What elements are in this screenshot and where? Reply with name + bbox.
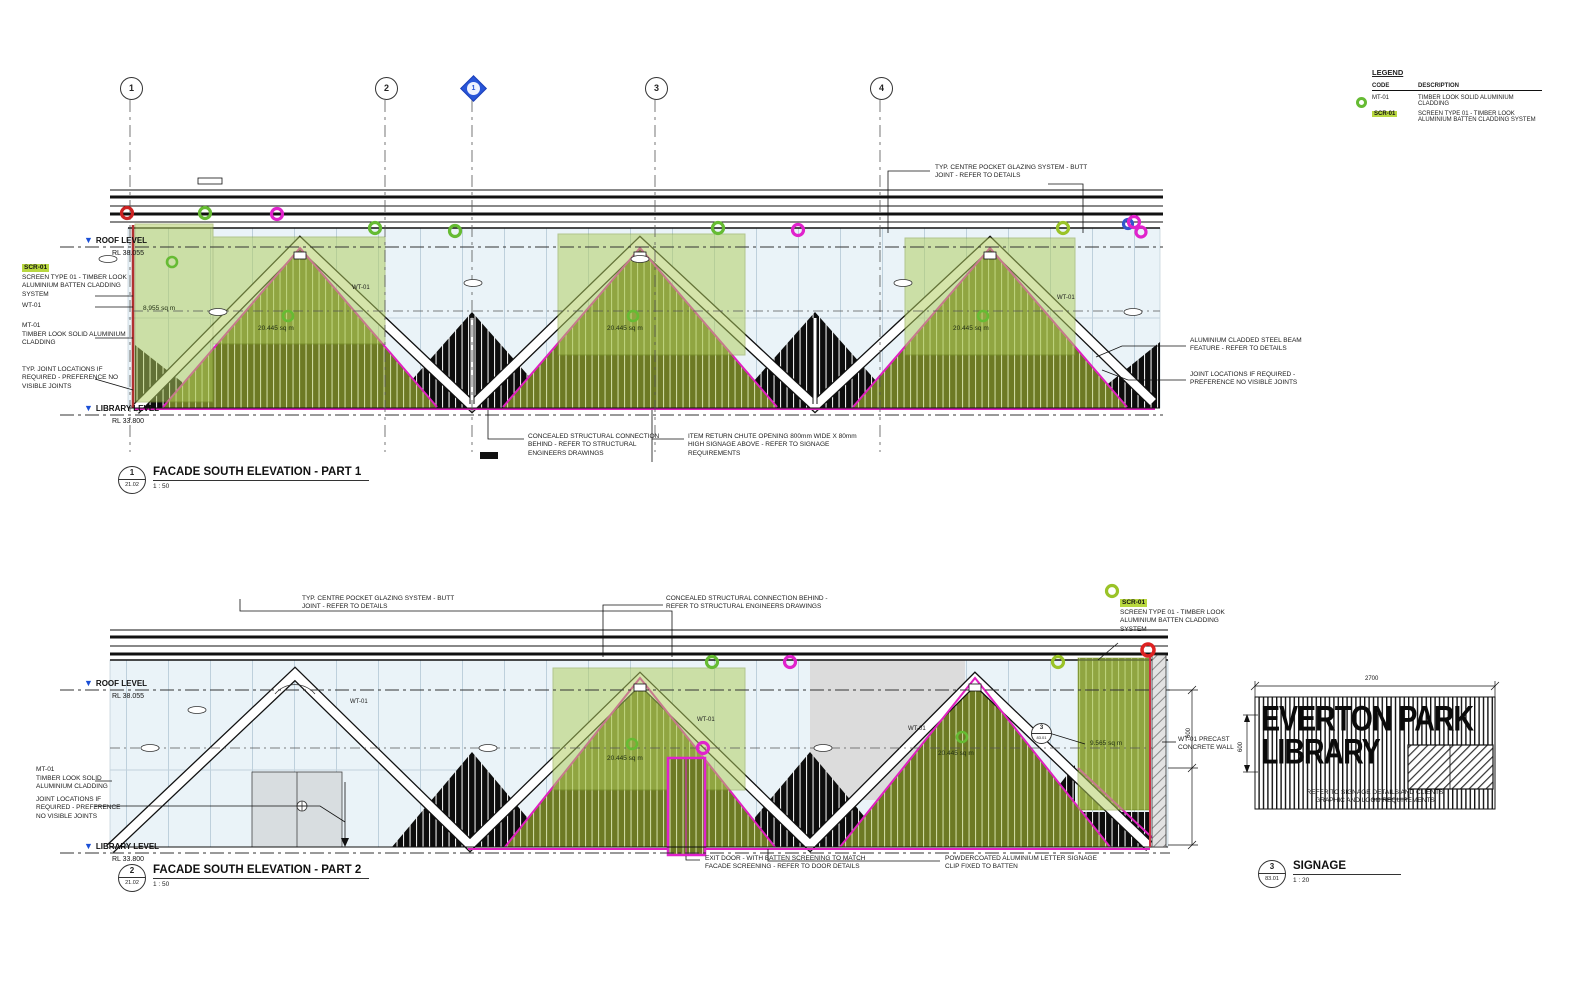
part1-mt-text: TIMBER LOOK SOLID ALUMINIUM CLADDING xyxy=(22,331,128,348)
part2-library-level-label: ▼LIBRARY LEVEL xyxy=(84,841,159,851)
part2-dim-600: 600 xyxy=(1186,728,1192,738)
signage-title-block: 3 83.01 SIGNAGE 1 : 20 xyxy=(1258,860,1401,888)
signage-dim-height: 600 xyxy=(1238,742,1244,752)
part2-wt-tag: WT-01 xyxy=(350,699,368,705)
part1-mt-code: MT-01 xyxy=(22,322,40,330)
grid-bubble-1: 1 xyxy=(120,77,143,100)
legend-row: SCR-01 SCREEN TYPE 01 - TIMBER LOOK ALUM… xyxy=(1372,111,1542,123)
part2-note-glazing: TYP. CENTRE POCKET GLAZING SYSTEM - BUTT… xyxy=(302,595,462,612)
part2-roof-level-label: ▼ROOF LEVEL xyxy=(84,678,147,688)
signage-note: REFER TO SIGNAGE DETAILS AND CLIENTS GRA… xyxy=(1300,789,1450,806)
part1-area-label: 8.955 sq m xyxy=(143,305,175,312)
part2-area-label: 9.565 sq m xyxy=(1090,740,1122,747)
level-marker-icon: ▼ xyxy=(84,235,93,245)
part1-title: FACADE SOUTH ELEVATION - PART 1 xyxy=(153,466,369,481)
part1-roof-level-rl: RL 38.055 xyxy=(112,250,144,257)
part2-precast-note: WT-01 PRECAST CONCRETE WALL xyxy=(1178,736,1258,753)
part1-chute-note: ITEM RETURN CHUTE OPENING 800mm WIDE X 8… xyxy=(688,433,873,458)
part2-title-block: 2 21.02 FACADE SOUTH ELEVATION - PART 2 … xyxy=(118,864,369,892)
grid-diamond-label: 1 xyxy=(467,82,480,95)
part2-wt-tag: WT-01 xyxy=(697,717,715,723)
legend: LEGEND CODE DESCRIPTION MT-01 TIMBER LOO… xyxy=(1372,68,1542,123)
legend-row-description: TIMBER LOOK SOLID ALUMINIUM CLADDING xyxy=(1418,95,1542,107)
legend-description-header: DESCRIPTION xyxy=(1418,83,1542,89)
legend-title: LEGEND xyxy=(1372,68,1542,77)
part2-roof-level-rl: RL 38.055 xyxy=(112,693,144,700)
part1-library-level-rl: RL 33.800 xyxy=(112,418,144,425)
part2-scr-text: SCREEN TYPE 01 - TIMBER LOOK ALUMINIUM B… xyxy=(1120,609,1232,634)
part2-facade-graphics xyxy=(60,586,1198,862)
grid-bubble-2: 2 xyxy=(375,77,398,100)
part2-wt-tag: WT-01 xyxy=(908,726,926,732)
part2-area-label: 20.445 sq m xyxy=(938,750,974,757)
part1-facade-graphics xyxy=(60,100,1186,462)
part2-library-level-rl: RL 33.800 xyxy=(112,856,144,863)
part2-area-label: 20.445 sq m xyxy=(607,755,643,762)
signage-dim-width: 2700 xyxy=(1365,676,1378,682)
legend-code-header: CODE xyxy=(1372,83,1418,89)
part1-joints-left-note: TYP. JOINT LOCATIONS IF REQUIRED - PREFE… xyxy=(22,366,122,391)
part1-note-glazing: TYP. CENTRE POCKET GLAZING SYSTEM - BUTT… xyxy=(935,164,1105,181)
part1-area-label: 20.445 sq m xyxy=(607,325,643,332)
green-circle-icon xyxy=(1356,97,1367,108)
part1-concealed-note: CONCEALED STRUCTURAL CONNECTION BEHIND -… xyxy=(528,433,663,458)
part2-title: FACADE SOUTH ELEVATION - PART 2 xyxy=(153,864,369,879)
legend-row-code: SCR-01 xyxy=(1372,111,1397,117)
part1-area-label: 20.445 sq m xyxy=(953,325,989,332)
part1-roof-level-label: ▼ROOF LEVEL xyxy=(84,235,147,245)
drawing-sheet: 1 2 1 3 4 LEGEND CODE DESCRIPTION MT-01 … xyxy=(0,0,1585,1005)
part2-joints-left-note: JOINT LOCATIONS IF REQUIRED - PREFERENCE… xyxy=(36,796,124,821)
level-marker-icon: ▼ xyxy=(84,403,93,413)
part1-area-label: 20.445 sq m xyxy=(258,325,294,332)
part1-ref-circle: 1 21.02 xyxy=(118,466,146,494)
grid-bubble-3: 3 xyxy=(645,77,668,100)
signage-title: SIGNAGE xyxy=(1293,860,1401,875)
legend-row-code: MT-01 xyxy=(1372,95,1418,107)
part2-ref-circle: 2 21.02 xyxy=(118,864,146,892)
part1-wt-tag: WT-01 xyxy=(352,285,370,291)
legend-row-description: SCREEN TYPE 01 - TIMBER LOOK ALUMINIUM B… xyxy=(1418,111,1542,123)
part1-title-block: 1 21.02 FACADE SOUTH ELEVATION - PART 1 … xyxy=(118,466,369,494)
part1-scr-code: SCR-01 xyxy=(22,264,49,272)
signage-scale: 1 : 20 xyxy=(1293,877,1401,884)
part1-wt-code: WT-01 xyxy=(22,302,41,310)
signage-letters-line2: LIBRARY xyxy=(1261,735,1380,769)
part2-scr-code: SCR-01 xyxy=(1120,599,1147,607)
part1-scr-text: SCREEN TYPE 01 - TIMBER LOOK ALUMINIUM B… xyxy=(22,274,128,299)
signage-ref-circle: 3 83.01 xyxy=(1258,860,1286,888)
level-marker-icon: ▼ xyxy=(84,841,93,851)
part2-note-concealed: CONCEALED STRUCTURAL CONNECTION BEHIND -… xyxy=(666,595,846,612)
level-marker-icon: ▼ xyxy=(84,678,93,688)
part1-joints-right-note: JOINT LOCATIONS IF REQUIRED - PREFERENCE… xyxy=(1190,371,1302,388)
part2-letter-signage-note: POWDERCOATED ALUMINIUM LETTER SIGNAGE CL… xyxy=(945,855,1105,872)
part2-mt-code: MT-01 xyxy=(36,766,54,774)
part2-scale: 1 : 50 xyxy=(153,881,369,888)
signage-letters-line1: EVERTON PARK xyxy=(1261,702,1473,736)
part1-wt-tag: WT-01 xyxy=(1057,295,1075,301)
part1-beam-note: ALUMINIUM CLADDED STEEL BEAM FEATURE - R… xyxy=(1190,337,1302,354)
part2-exit-door-note: EXIT DOOR - WITH BATTEN SCREENING TO MAT… xyxy=(705,855,880,872)
grid-bubble-4: 4 xyxy=(870,77,893,100)
legend-row: MT-01 TIMBER LOOK SOLID ALUMINIUM CLADDI… xyxy=(1372,95,1542,107)
part1-library-level-label: ▼LIBRARY LEVEL xyxy=(84,403,159,413)
part2-mt-text: TIMBER LOOK SOLID ALUMINIUM CLADDING xyxy=(36,775,131,792)
part1-scale: 1 : 50 xyxy=(153,483,369,490)
part2-signage-callout: 3 83.01 xyxy=(1031,723,1052,744)
